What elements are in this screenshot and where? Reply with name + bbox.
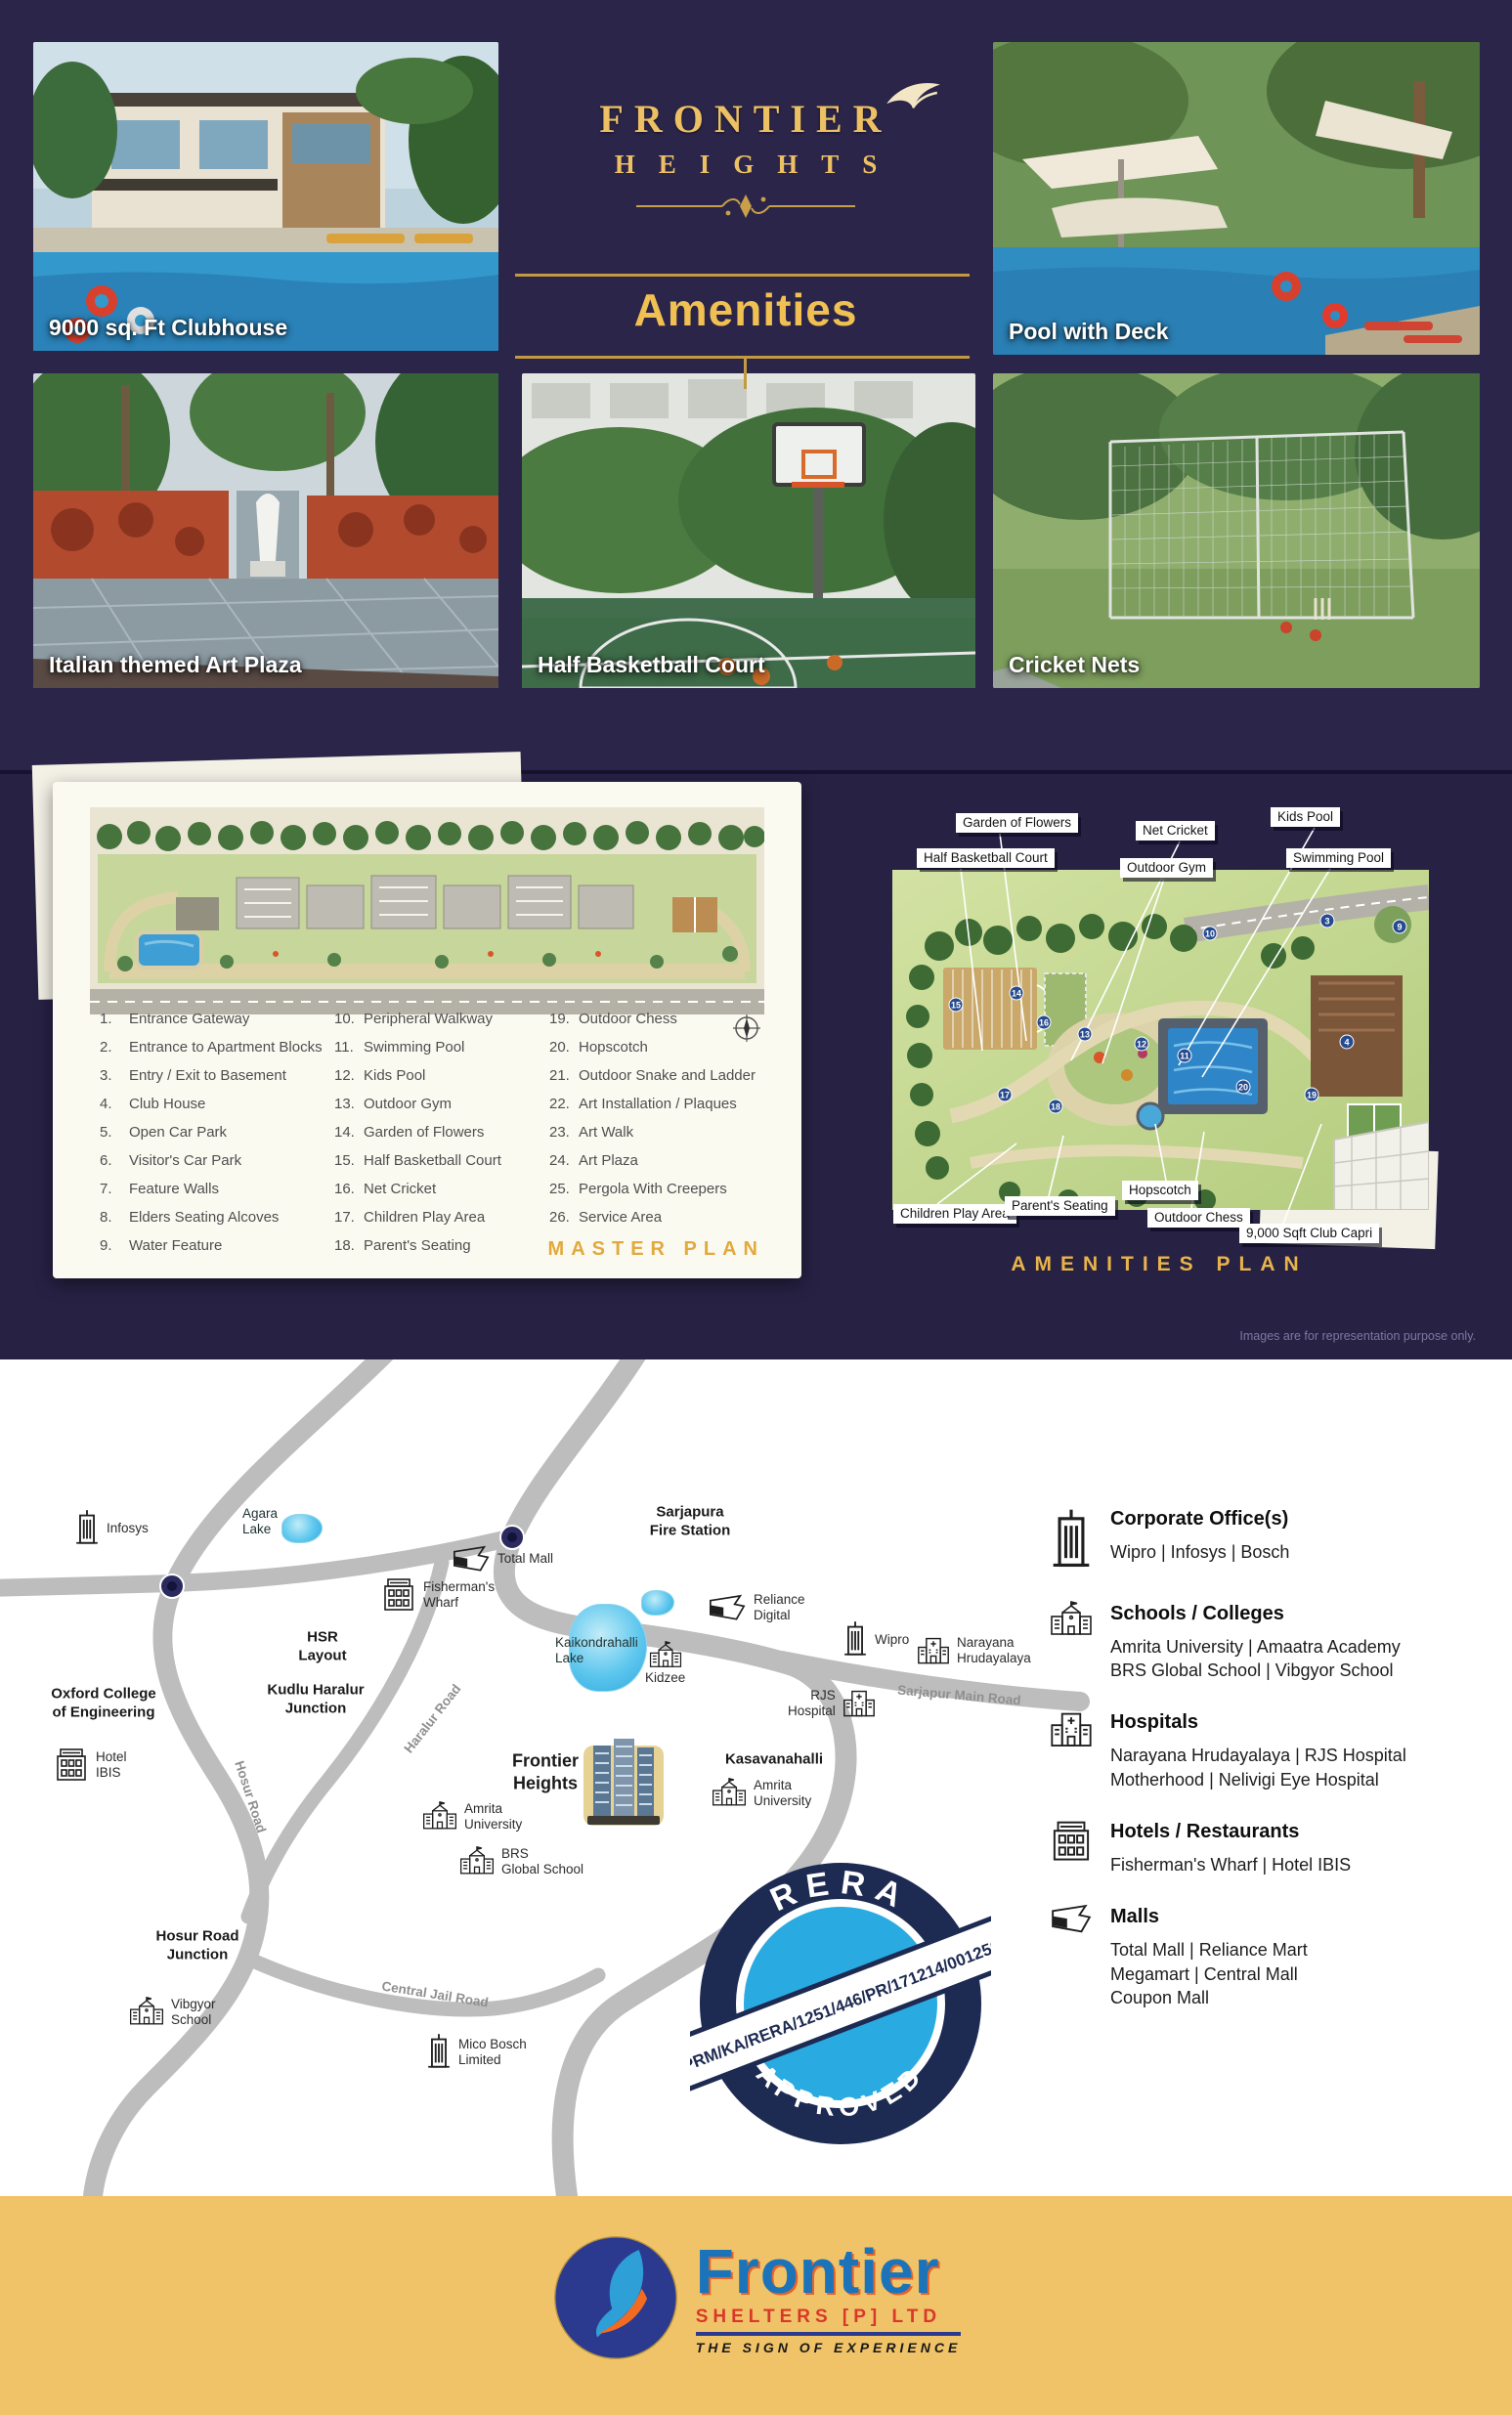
hotel-icon bbox=[54, 1747, 89, 1784]
office-icon bbox=[1048, 1506, 1095, 1574]
plan-label-outdoor-chess: Outdoor Chess bbox=[1147, 1208, 1250, 1228]
legend-number: 24. bbox=[549, 1152, 579, 1169]
legend-item: 6.Visitor's Car Park bbox=[100, 1152, 323, 1181]
legend-item: 24.Art Plaza bbox=[549, 1152, 756, 1181]
directory-section-hospitals: HospitalsNarayana Hrudayalaya | RJS Hosp… bbox=[1048, 1709, 1488, 1792]
directory-section-body: MallsTotal Mall | Reliance MartMegamart … bbox=[1110, 1904, 1308, 2010]
legend-item: 16.Net Cricket bbox=[334, 1181, 501, 1209]
legend-column: 10.Peripheral Walkway11.Swimming Pool12.… bbox=[334, 1011, 501, 1266]
map-landmark-infosys: Infosys bbox=[74, 1508, 149, 1548]
directory-line: Narayana Hrudayalaya | RJS Hospital bbox=[1110, 1744, 1406, 1768]
directory-section-malls: MallsTotal Mall | Reliance MartMegamart … bbox=[1048, 1904, 1488, 2010]
basketball-photo-art bbox=[522, 373, 975, 688]
map-landmark-vibgyor: VibgyorSchool bbox=[129, 1997, 216, 2028]
directory-line: Coupon Mall bbox=[1110, 1986, 1308, 2010]
directory-section-schools-colleges: Schools / CollegesAmrita University | Am… bbox=[1048, 1601, 1488, 1684]
photo-caption-pool-deck: Pool with Deck bbox=[1009, 319, 1169, 345]
legend-item: 18.Parent's Seating bbox=[334, 1237, 501, 1266]
legend-text: Water Feature bbox=[129, 1237, 222, 1254]
plan-label-garden-of-flowers: Garden of Flowers bbox=[956, 813, 1078, 833]
directory-section-title: Malls bbox=[1110, 1906, 1308, 1928]
plan-label-outdoor-gym: Outdoor Gym bbox=[1120, 858, 1213, 878]
legend-number: 9. bbox=[100, 1237, 129, 1254]
plan-marker-10: 10 bbox=[1203, 927, 1218, 941]
lake-label-agara: AgaraLake bbox=[242, 1506, 278, 1536]
directory-section-title: Hotels / Restaurants bbox=[1110, 1821, 1351, 1843]
office-icon bbox=[426, 2032, 452, 2072]
plan-label-swimming-pool: Swimming Pool bbox=[1286, 848, 1391, 868]
legend-item: 17.Children Play Area bbox=[334, 1209, 501, 1237]
legend-number: 12. bbox=[334, 1067, 364, 1084]
plan-marker-20: 20 bbox=[1236, 1080, 1251, 1095]
photo-caption-clubhouse: 9000 sq. Ft Clubhouse bbox=[49, 315, 287, 341]
landmark-label: Total Mall bbox=[497, 1551, 553, 1567]
legend-text: Club House bbox=[129, 1096, 205, 1112]
gold-divider-tick bbox=[744, 358, 747, 389]
disclaimer-text: Images are for representation purpose on… bbox=[1095, 1329, 1476, 1343]
cricket-photo-art bbox=[993, 373, 1480, 688]
directory-line: Fisherman's Wharf | Hotel IBIS bbox=[1110, 1853, 1351, 1877]
school-icon bbox=[129, 1997, 164, 2027]
legend-text: Entrance to Apartment Blocks bbox=[129, 1039, 323, 1056]
plan-marker-19: 19 bbox=[1305, 1088, 1319, 1102]
map-area-oxford-college: Oxford College of Engineering bbox=[51, 1685, 156, 1722]
legend-number: 18. bbox=[334, 1237, 364, 1254]
legend-text: Outdoor Snake and Ladder bbox=[579, 1067, 756, 1084]
map-landmark-hotel: HotelIBIS bbox=[54, 1747, 127, 1784]
legend-item: 7.Feature Walls bbox=[100, 1181, 323, 1209]
plan-marker-16: 16 bbox=[1037, 1015, 1052, 1030]
legend-text: Art Plaza bbox=[579, 1152, 638, 1169]
legend-text: Peripheral Walkway bbox=[364, 1011, 493, 1027]
legend-number: 7. bbox=[100, 1181, 129, 1197]
directory-section-body: Hotels / RestaurantsFisherman's Wharf | … bbox=[1110, 1819, 1351, 1877]
school-icon bbox=[459, 1846, 495, 1876]
master-plan-title: MASTER PLAN bbox=[548, 1238, 764, 1261]
legend-item: 14.Garden of Flowers bbox=[334, 1124, 501, 1152]
landmark-label: RJSHospital bbox=[788, 1688, 836, 1719]
directory-line: Wipro | Infosys | Bosch bbox=[1110, 1540, 1289, 1565]
directory-section-title: Hospitals bbox=[1110, 1711, 1406, 1734]
legend-item: 1.Entrance Gateway bbox=[100, 1011, 323, 1039]
office-icon bbox=[74, 1508, 100, 1548]
photo-pool-deck: Pool with Deck bbox=[993, 42, 1480, 355]
brand-name: FRONTIER bbox=[599, 96, 891, 142]
plan-label-9-000-sqft-club-capri: 9,000 Sqft Club Capri bbox=[1239, 1224, 1379, 1243]
map-landmark-mico-bosch: Mico BoschLimited bbox=[426, 2032, 527, 2072]
landmark-label: Mico BoschLimited bbox=[458, 2037, 527, 2068]
directory-section-title: Schools / Colleges bbox=[1110, 1603, 1401, 1625]
photo-caption-art-plaza: Italian themed Art Plaza bbox=[49, 652, 302, 678]
footer: Frontier SHELTERS [P] LTD THE SIGN OF EX… bbox=[0, 2196, 1512, 2415]
art-plaza-photo-art bbox=[33, 373, 498, 688]
legend-item: 5.Open Car Park bbox=[100, 1124, 323, 1152]
photo-cricket: Cricket Nets bbox=[993, 373, 1480, 688]
school-icon bbox=[1048, 1601, 1095, 1684]
legend-text: Kids Pool bbox=[364, 1067, 425, 1084]
legend-text: Outdoor Chess bbox=[579, 1011, 677, 1027]
logo-rule bbox=[696, 2332, 962, 2336]
legend-number: 3. bbox=[100, 1067, 129, 1084]
landmark-label: NarayanaHrudayalaya bbox=[957, 1635, 1031, 1666]
legend-number: 13. bbox=[334, 1096, 364, 1112]
developer-logo-text: Frontier SHELTERS [P] LTD THE SIGN OF EX… bbox=[696, 2240, 962, 2355]
directory-line: BRS Global School | Vibgyor School bbox=[1110, 1659, 1401, 1683]
legend-text: Outdoor Gym bbox=[364, 1096, 452, 1112]
legend-text: Elders Seating Alcoves bbox=[129, 1209, 279, 1226]
plan-marker-3: 3 bbox=[1320, 914, 1335, 928]
developer-logo: Frontier SHELTERS [P] LTD THE SIGN OF EX… bbox=[0, 2196, 1512, 2362]
mall-icon bbox=[452, 1545, 491, 1574]
landmark-label: Wipro bbox=[875, 1632, 909, 1648]
legend-item: 4.Club House bbox=[100, 1096, 323, 1124]
map-area-kudlu-haralur: Kudlu Haralur Junction bbox=[267, 1681, 364, 1718]
gold-divider-top bbox=[515, 274, 970, 277]
map-area-frontier: Frontier Heights bbox=[512, 1750, 579, 1794]
legend-number: 4. bbox=[100, 1096, 129, 1112]
legend-number: 23. bbox=[549, 1124, 579, 1141]
pool-deck-photo-art bbox=[993, 42, 1480, 355]
legend-item: 15.Half Basketball Court bbox=[334, 1152, 501, 1181]
legend-item: 12.Kids Pool bbox=[334, 1067, 501, 1096]
plan-label-children-play-area: Children Play Area bbox=[893, 1204, 1016, 1224]
landmark-label: HotelIBIS bbox=[96, 1749, 127, 1781]
plan-marker-18: 18 bbox=[1049, 1100, 1063, 1114]
legend-item: 3.Entry / Exit to Basement bbox=[100, 1067, 323, 1096]
map-area-hsr: HSR Layout bbox=[298, 1628, 346, 1665]
directory-section-body: HospitalsNarayana Hrudayalaya | RJS Hosp… bbox=[1110, 1709, 1406, 1792]
section-title: Amenities bbox=[508, 283, 983, 336]
legend-text: Open Car Park bbox=[129, 1124, 227, 1141]
legend-text: Art Walk bbox=[579, 1124, 633, 1141]
directory-line: Motherhood | Nelivigi Eye Hospital bbox=[1110, 1768, 1406, 1792]
lake-label-kaikondrahalli: KaikondrahalliLake bbox=[555, 1635, 638, 1665]
map-landmark-wipro: Wipro bbox=[842, 1619, 909, 1660]
plan-label-hopscotch: Hopscotch bbox=[1122, 1181, 1198, 1200]
legend-item: 22.Art Installation / Plaques bbox=[549, 1096, 756, 1124]
clubhouse-photo-art bbox=[33, 42, 498, 351]
school-icon bbox=[712, 1778, 747, 1808]
plan-marker-4: 4 bbox=[1340, 1035, 1355, 1050]
school-icon bbox=[422, 1801, 457, 1832]
legend-text: Swimming Pool bbox=[364, 1039, 464, 1056]
landmark-label: Infosys bbox=[107, 1521, 149, 1536]
legend-number: 25. bbox=[549, 1181, 579, 1197]
developer-subtitle: SHELTERS [P] LTD bbox=[696, 2307, 962, 2328]
map-landmark-brs: BRSGlobal School bbox=[459, 1846, 583, 1877]
legend-item: 26.Service Area bbox=[549, 1209, 756, 1237]
compass-icon bbox=[731, 1013, 762, 1044]
landmark-label: Kidzee bbox=[645, 1670, 685, 1686]
legend-text: Visitor's Car Park bbox=[129, 1152, 241, 1169]
plan-label-kids-pool: Kids Pool bbox=[1271, 807, 1340, 827]
office-icon bbox=[842, 1619, 868, 1660]
plan-marker-14: 14 bbox=[1010, 986, 1024, 1001]
legend-column: 1.Entrance Gateway2.Entrance to Apartmen… bbox=[100, 1011, 323, 1266]
legend-item: 13.Outdoor Gym bbox=[334, 1096, 501, 1124]
directory-section-title: Corporate Office(s) bbox=[1110, 1508, 1289, 1531]
map-area-kasavanahalli: Kasavanahalli bbox=[725, 1751, 823, 1770]
map-landmark-amrita: AmritaUniversity bbox=[422, 1801, 522, 1833]
legend-number: 20. bbox=[549, 1039, 579, 1056]
legend-item: 11.Swimming Pool bbox=[334, 1039, 501, 1067]
legend-item: 20.Hopscotch bbox=[549, 1039, 756, 1067]
developer-tagline: THE SIGN OF EXPERIENCE bbox=[696, 2340, 962, 2355]
directory-section-body: Schools / CollegesAmrita University | Am… bbox=[1110, 1601, 1401, 1684]
brand-subname: HEIGHTS bbox=[508, 150, 983, 180]
landmark-label: VibgyorSchool bbox=[171, 1997, 216, 2028]
photo-art-plaza: Italian themed Art Plaza bbox=[33, 373, 498, 688]
photo-clubhouse: 9000 sq. Ft Clubhouse bbox=[33, 42, 498, 351]
plan-label-net-cricket: Net Cricket bbox=[1136, 821, 1215, 841]
legend-number: 22. bbox=[549, 1096, 579, 1112]
map-landmark-narayana: NarayanaHrudayalaya bbox=[917, 1635, 1031, 1666]
rera-approved-stamp: RERA APPROVED PRM/KA/RERA/1251/446/PR/17… bbox=[690, 1853, 991, 2154]
map-area-hosur-road: Hosur Road Junction bbox=[155, 1927, 238, 1964]
legend-item: 2.Entrance to Apartment Blocks bbox=[100, 1039, 323, 1067]
hospital-icon bbox=[842, 1688, 876, 1719]
directory-line: Megamart | Central Mall bbox=[1110, 1962, 1308, 1987]
legend-number: 17. bbox=[334, 1209, 364, 1226]
legend-text: Service Area bbox=[579, 1209, 662, 1226]
photo-caption-cricket: Cricket Nets bbox=[1009, 652, 1140, 678]
legend-number: 1. bbox=[100, 1011, 129, 1027]
photo-basketball: Half Basketball Court bbox=[522, 373, 975, 688]
map-landmark-reliance: RelianceDigital bbox=[708, 1592, 805, 1623]
legend-item: 9.Water Feature bbox=[100, 1237, 323, 1266]
hospital-icon bbox=[917, 1635, 950, 1666]
plan-marker-15: 15 bbox=[949, 998, 964, 1013]
developer-name: Frontier bbox=[696, 2240, 962, 2303]
landmark-label: AmritaUniversity bbox=[464, 1801, 522, 1833]
legend-text: Parent's Seating bbox=[364, 1237, 471, 1254]
plan-marker-9: 9 bbox=[1393, 920, 1407, 934]
legend-number: 11. bbox=[334, 1039, 364, 1056]
landmark-label: AmritaUniversity bbox=[754, 1778, 811, 1809]
legend-item: 23.Art Walk bbox=[549, 1124, 756, 1152]
map-landmark-rjs: RJSHospital bbox=[788, 1688, 876, 1719]
legend-text: Hopscotch bbox=[579, 1039, 648, 1056]
amenities-plan-block: 1514161310391211171820194 Garden of Flow… bbox=[880, 801, 1439, 1290]
directory-line: Total Mall | Reliance Mart bbox=[1110, 1938, 1308, 1962]
legend-number: 10. bbox=[334, 1011, 364, 1027]
directory-line: Amrita University | Amaatra Academy bbox=[1110, 1635, 1401, 1660]
legend-number: 15. bbox=[334, 1152, 364, 1169]
plan-marker-11: 11 bbox=[1178, 1049, 1192, 1063]
legend-text: Entrance Gateway bbox=[129, 1011, 249, 1027]
location-map: AgaraLakeKaikondrahalliLake InfosysTotal… bbox=[0, 1359, 1512, 2196]
legend-item: 8.Elders Seating Alcoves bbox=[100, 1209, 323, 1237]
legend-number: 21. bbox=[549, 1067, 579, 1084]
legend-text: Half Basketball Court bbox=[364, 1152, 501, 1169]
plan-marker-12: 12 bbox=[1135, 1037, 1149, 1052]
landmark-label: RelianceDigital bbox=[754, 1592, 805, 1623]
plan-label-half-basketball-court: Half Basketball Court bbox=[917, 848, 1055, 868]
legend-number: 14. bbox=[334, 1124, 364, 1141]
map-landmark-kidzee: Kidzee bbox=[645, 1641, 685, 1686]
legend-number: 19. bbox=[549, 1011, 579, 1027]
plan-marker-17: 17 bbox=[998, 1088, 1013, 1102]
gold-divider-bottom bbox=[515, 356, 970, 359]
directory-section-corporate-office-s: Corporate Office(s)Wipro | Infosys | Bos… bbox=[1048, 1506, 1488, 1574]
map-landmark-amrita: AmritaUniversity bbox=[712, 1778, 811, 1809]
photo-caption-basketball: Half Basketball Court bbox=[538, 652, 765, 678]
brand-block: FRONTIER HEIGHTS bbox=[508, 96, 983, 228]
hotel-icon bbox=[381, 1576, 416, 1614]
legend-text: Entry / Exit to Basement bbox=[129, 1067, 286, 1084]
legend-item: 25.Pergola With Creepers bbox=[549, 1181, 756, 1209]
directory-section-hotels-restaurants: Hotels / RestaurantsFisherman's Wharf | … bbox=[1048, 1819, 1488, 1877]
legend-text: Children Play Area bbox=[364, 1209, 485, 1226]
legend-column: 19.Outdoor Chess20.Hopscotch21.Outdoor S… bbox=[549, 1011, 756, 1237]
mall-icon bbox=[1048, 1904, 1095, 2010]
frontier-heights-building bbox=[582, 1732, 666, 1830]
legend-item: 10.Peripheral Walkway bbox=[334, 1011, 501, 1039]
brand-name-text: FRONTIER bbox=[599, 97, 891, 141]
directory-section-body: Corporate Office(s)Wipro | Infosys | Bos… bbox=[1110, 1506, 1289, 1574]
plan-marker-13: 13 bbox=[1078, 1027, 1093, 1042]
mall-icon bbox=[708, 1594, 747, 1622]
legend-text: Feature Walls bbox=[129, 1181, 219, 1197]
legend-item: 19.Outdoor Chess bbox=[549, 1011, 756, 1039]
landmark-label: Fisherman'sWharf bbox=[423, 1579, 495, 1611]
legend-number: 26. bbox=[549, 1209, 579, 1226]
brochure-page: 9000 sq. Ft Clubhouse Pool with Deck bbox=[0, 0, 1512, 2415]
legend-text: Pergola With Creepers bbox=[579, 1181, 727, 1197]
legend-number: 8. bbox=[100, 1209, 129, 1226]
hospital-icon bbox=[1048, 1709, 1095, 1792]
legend-number: 5. bbox=[100, 1124, 129, 1141]
legend-number: 6. bbox=[100, 1152, 129, 1169]
legend-number: 2. bbox=[100, 1039, 129, 1056]
hotel-icon bbox=[1048, 1819, 1095, 1877]
legend-text: Garden of Flowers bbox=[364, 1124, 484, 1141]
map-area-sarjapura: Sarjapura Fire Station bbox=[650, 1503, 731, 1540]
plan-label-parent-s-seating: Parent's Seating bbox=[1005, 1196, 1115, 1216]
master-plan-card: 1.Entrance Gateway2.Entrance to Apartmen… bbox=[53, 782, 801, 1278]
school-icon bbox=[649, 1641, 682, 1669]
dove-icon bbox=[883, 76, 943, 117]
master-plan-illustration bbox=[90, 807, 764, 1014]
map-landmark-total-mall: Total Mall bbox=[452, 1545, 553, 1574]
flourish-ornament bbox=[508, 190, 983, 228]
amenities-plan-title: AMENITIES PLAN bbox=[880, 1253, 1439, 1276]
nearby-directory: Corporate Office(s)Wipro | Infosys | Bos… bbox=[1048, 1506, 1488, 2037]
legend-number: 16. bbox=[334, 1181, 364, 1197]
landmark-label: BRSGlobal School bbox=[501, 1846, 583, 1877]
legend-text: Net Cricket bbox=[364, 1181, 436, 1197]
frontier-shelters-logo-icon bbox=[551, 2233, 680, 2362]
map-landmark-fisherman-s: Fisherman'sWharf bbox=[381, 1576, 495, 1614]
legend-item: 21.Outdoor Snake and Ladder bbox=[549, 1067, 756, 1096]
legend-text: Art Installation / Plaques bbox=[579, 1096, 737, 1112]
